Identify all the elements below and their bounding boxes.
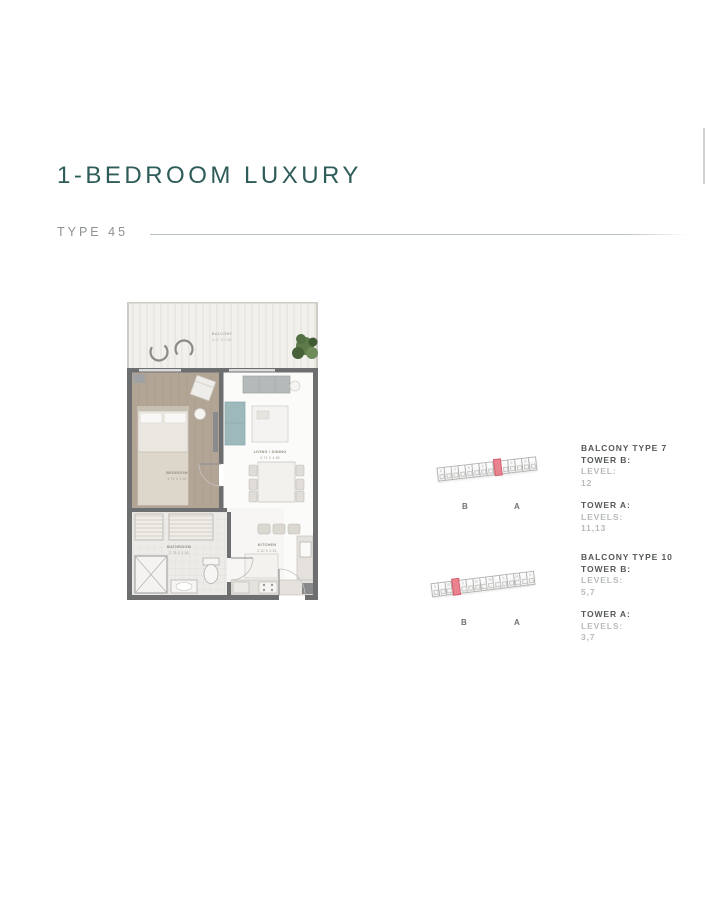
info-title: BALCONY TYPE 7 <box>581 443 705 455</box>
tower-name: TOWER B: <box>581 455 705 467</box>
bed <box>137 406 189 505</box>
shower <box>135 556 167 593</box>
balcony: BALCONY 4.97 X 1.50 <box>127 302 318 368</box>
coffee-table <box>252 406 288 442</box>
tower-name: TOWER A: <box>581 500 705 512</box>
kitchen-dims: 2.10 X 2.51 <box>257 549 277 553</box>
tower-section: TOWER A: LEVELS: 3,7 <box>581 609 705 644</box>
sink <box>171 580 197 593</box>
kitchen-label: KITCHEN <box>258 543 277 547</box>
slider-door <box>229 369 275 372</box>
info-block-balcony-type-7: BALCONY TYPE 7 TOWER B: LEVEL: 12 TOWER … <box>581 443 705 546</box>
keyplan-balcony-type-7: B A <box>435 450 539 522</box>
tower-section: TOWER B: LEVELS: 5,7 <box>581 564 705 599</box>
levels-value: 12 <box>581 478 705 490</box>
levels-value: 11,13 <box>581 523 705 535</box>
slider-door <box>139 369 181 372</box>
keyplan-balcony-type-10: B A <box>430 563 536 637</box>
toilet <box>203 558 219 584</box>
page-edge-tick <box>703 128 705 184</box>
bathroom-dims: 2.75 X 2.30 <box>169 551 189 555</box>
tower-name: TOWER B: <box>581 564 705 576</box>
keyplan-strip <box>437 456 538 481</box>
tower-a-label: A <box>514 618 521 627</box>
levels-value: 3,7 <box>581 632 705 644</box>
unit-cell <box>529 457 536 470</box>
bedroom-dresser <box>213 412 218 452</box>
info-title: BALCONY TYPE 10 <box>581 552 705 564</box>
divider-rule <box>150 234 688 235</box>
ac-unit <box>133 374 145 383</box>
tower-section: TOWER A: LEVELS: 11,13 <box>581 500 705 535</box>
type-row: TYPE 45 <box>57 224 697 240</box>
tower-b-label: B <box>461 618 468 627</box>
page-title: 1-BEDROOM LUXURY <box>57 162 362 190</box>
tower-a-label: A <box>514 502 521 511</box>
levels-label: LEVELS: <box>581 575 705 587</box>
living-dims: 3.74 X 4.86 <box>260 456 280 460</box>
living-label: LIVING / DINING <box>254 450 287 454</box>
balcony-dims: 4.97 X 1.50 <box>212 338 232 342</box>
floorplan: BALCONY 4.97 X 1.50 <box>127 302 318 600</box>
bathroom-label: BATHROOM <box>167 545 191 549</box>
keyplan-strip <box>431 571 536 598</box>
levels-label: LEVELS: <box>581 621 705 633</box>
tower-name: TOWER A: <box>581 609 705 621</box>
unit-cell <box>527 572 534 585</box>
tower-b-label: B <box>462 502 469 511</box>
tower-section: TOWER B: LEVEL: 12 <box>581 455 705 490</box>
balcony-label: BALCONY <box>212 332 233 336</box>
bedroom-dims: 3.74 X 3.30 <box>167 477 187 481</box>
dining-table <box>249 462 304 502</box>
levels-value: 5,7 <box>581 587 705 599</box>
pouf <box>195 409 206 420</box>
levels-label: LEVELS: <box>581 512 705 524</box>
info-block-balcony-type-10: BALCONY TYPE 10 TOWER B: LEVELS: 5,7 TOW… <box>581 552 705 655</box>
levels-label: LEVEL: <box>581 466 705 478</box>
unit-type-label: TYPE 45 <box>57 225 128 239</box>
bedroom-label: BEDROOM <box>166 471 188 475</box>
